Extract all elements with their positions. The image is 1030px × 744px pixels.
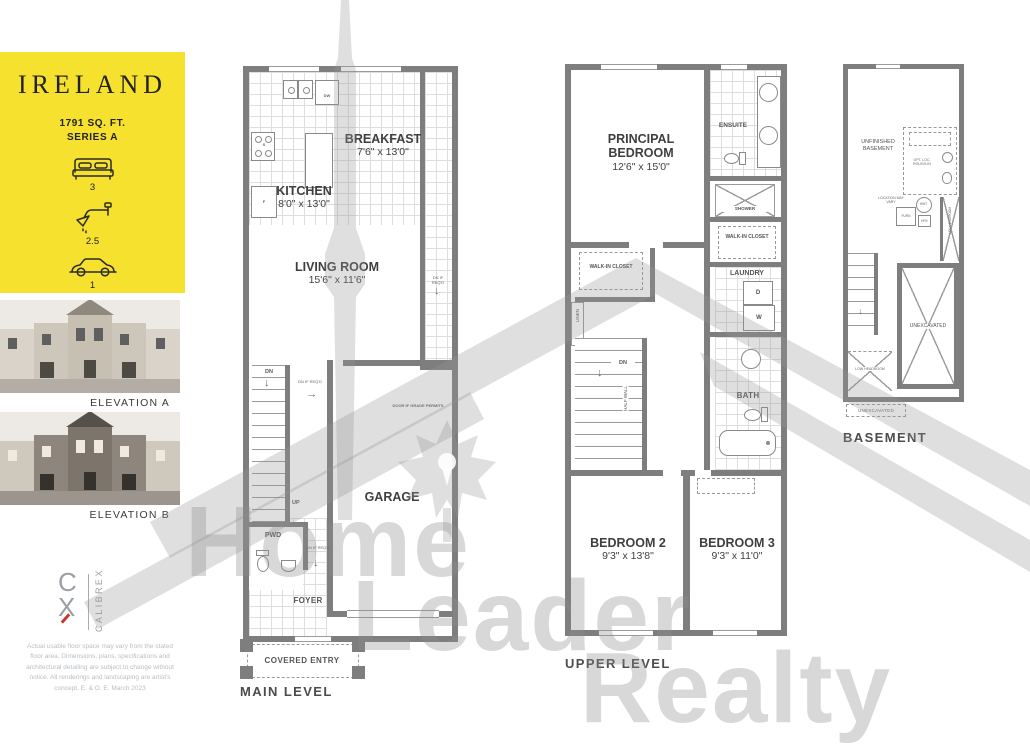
room-dims: 12'6" x 15'0" [581,161,701,173]
laundry-label: LAUNDRY [717,270,777,279]
garage-door-opening [347,610,439,618]
half-wall-label: HALF WALL [623,386,629,411]
townhouse-unit [0,441,34,491]
walkin-closet-label: WALK-IN CLOSET [585,264,637,270]
room-dims: 9'3" x 11'0" [693,550,781,562]
walkin-closet-left: WALK-IN CLOSET [575,248,655,302]
window [156,338,165,349]
bedroom2-label: BEDROOM 2 9'3" x 13'8" [573,536,683,562]
hot-water-tank: HWT [916,197,932,213]
logo-brand-text: CALIBREX [94,572,104,632]
burner [255,136,262,143]
window [76,440,85,453]
calibrex-logo: C X CALIBREX [58,570,138,634]
window [42,446,51,457]
room-dims: 8'0" x 13'0" [250,198,358,210]
low-headroom-strip: LOW HEADROOM [940,197,959,261]
elevation-b-label: ELEVATION B [0,509,170,521]
unexcavated-label: UNEXCAVATED [851,408,901,413]
watermark-word-3: Realty [580,638,892,738]
walkin-closet-label: WALK-IN CLOSET [723,234,771,240]
door-grade-note: DOOR IF GRADE PERMITS [387,404,449,409]
toilet [257,556,269,572]
linen-label: LINEN [575,309,581,322]
stairs-up-label: UP [292,500,312,507]
low-headroom-label: LOW HEADROOM [854,367,886,371]
sink-basin [288,87,295,94]
front-door-opening [295,636,331,642]
unfinished-basement-label: UNFINISHED BASEMENT [848,139,908,153]
hrv-unit: HRV [918,215,931,227]
bath-label: BATH [718,391,778,401]
room-name: BEDROOM 2 [573,536,683,550]
driveway [0,491,180,505]
window [8,338,17,349]
window [94,328,103,341]
garage-door [122,362,136,378]
sink [741,349,761,369]
garage-door [40,474,54,490]
wall [249,522,308,527]
main-level-plan: DN IF REQ'D ↓ DW S F BREAKFAST 7'6" x 13… [243,66,458,642]
logo-divider [88,574,89,630]
yellow-info-panel: IRELAND 1791 SQ. FT. SERIES A 3 2.5 [0,52,185,293]
model-title: IRELAND [0,70,185,100]
covered-entry-label: COVERED ENTRY [254,656,350,666]
car-icon [68,255,118,279]
roof-gable [66,412,114,427]
side-deck: DN IF REQ'D ↓ [420,72,452,370]
principal-bedroom-label: PRINCIPAL BEDROOM 12'6" x 15'0" [581,132,701,173]
unexcavated-area: UNEXCAVATED [897,263,959,389]
low-headroom-area: LOW HEADROOM [848,351,892,391]
bedroom3-closet [697,478,755,494]
breakfast-label: BREAKFAST 7'6" x 13'0" [327,132,439,158]
unexcavated-label: UNEXCAVATED [903,323,953,329]
window [8,450,17,461]
stairs-dn-label: DN [257,369,281,376]
room-name: BREAKFAST [327,132,439,146]
door-opening [663,470,681,476]
burner [265,150,272,157]
townhouse-unit [0,329,34,379]
rough-in-room: OPT. LOC. ROUGH-IN [903,127,957,195]
sqft-text: 1791 SQ. FT. [0,118,185,129]
wall [327,360,333,617]
window [876,64,900,69]
washer: W [743,305,775,331]
burner [265,136,272,143]
hrv-label: HRV [919,220,930,224]
porch-post [352,639,365,652]
main-level-label: MAIN LEVEL [240,684,333,699]
dryer: D [743,281,773,305]
foyer-label: FOYER [269,596,347,606]
kitchen-label: KITCHEN 8'0" x 13'0" [250,184,358,210]
sink [281,560,296,572]
pwd-label: PWD [253,532,293,541]
bath-floor: BATH [715,337,781,470]
elevation-b-photo [0,412,180,505]
tub-drain [766,441,770,445]
window [94,440,103,453]
basement-label: BASEMENT [843,430,927,445]
room-name: BEDROOM 3 [693,536,781,550]
stove: S [251,132,275,161]
window [120,334,129,345]
porch-post [352,666,365,679]
bedroom3-label: BEDROOM 3 9'3" x 11'0" [693,536,781,562]
dishwasher-label: DW [316,94,338,99]
wall [704,70,710,476]
wall [710,176,781,181]
elevation-a-label: ELEVATION A [0,397,170,409]
window [341,66,401,72]
location-note: LOCATION MAY VARY [876,196,906,204]
hwt-label: HWT [917,203,930,207]
rough-in-label: OPT. LOC. ROUGH-IN [906,158,938,166]
washer-label: W [744,315,774,323]
window [120,446,129,457]
upper-level-plan: PRINCIPAL BEDROOM 12'6" x 15'0" ENSUITE … [565,64,787,636]
down-arrow: ↓ [434,286,440,297]
dn-if-reqd-note: DN IF REQ'D [297,380,323,385]
walkin-closet-right [718,226,776,259]
toilet [744,409,761,421]
shower-label: SHOWER [723,206,767,212]
door-opening [695,470,711,476]
rough-in-toilet [942,172,952,184]
driveway [0,379,180,393]
rough-in-sink [942,152,953,163]
garage-label: GARAGE [352,490,432,504]
kitchen-sink [283,80,298,99]
shower-icon [72,201,114,235]
wall [343,360,452,366]
townhouse-unit [146,329,180,379]
covered-entry: COVERED ENTRY [247,644,359,678]
room-dims: 15'6" x 11'6" [267,274,407,286]
window [599,630,653,636]
toilet-tank [761,407,768,422]
bathtub [719,430,776,456]
closet-dash [579,252,643,290]
wall [683,476,690,630]
garage-door [122,474,136,490]
stove-label: S [260,143,268,148]
burner [255,150,262,157]
rough-in-tub [909,132,951,146]
entry-door [84,360,96,378]
room-name: PRINCIPAL BEDROOM [596,132,686,161]
furnace: FURN [896,207,916,226]
furnace-label: FURN [897,215,915,219]
elevation-a-photo [0,300,180,393]
room-name: KITCHEN [250,184,358,198]
window [156,450,165,461]
unexcavated-strip: UNEXCAVATED [846,404,906,417]
down-arrow: ↓ [313,558,319,569]
down-arrow: ↓ [597,368,603,379]
laundry-floor: LAUNDRY D W [715,267,781,332]
dryer-label: D [744,290,772,298]
roof-gable [66,300,114,315]
down-arrow: ↓ [858,307,863,316]
sink [759,83,778,102]
window [42,334,51,345]
bed-icon [70,155,116,181]
garage-door [40,362,54,378]
upper-stairs [575,338,647,470]
window [76,328,85,341]
sink [759,126,778,145]
wall [710,217,781,222]
porch-post [240,666,253,679]
series-text: SERIES A [0,132,185,143]
entry-door [84,472,96,490]
room-dims: 7'6" x 13'0" [327,146,439,158]
beds-count: 3 [0,182,185,193]
toilet-tank [739,152,746,165]
basement-plan: UNFINISHED BASEMENT OPT. LOC. ROUGH-IN L… [843,64,964,402]
window [713,630,757,636]
living-room-label: LIVING ROOM 15'6" x 11'6" [267,260,407,286]
stairs-dn-label: DN [611,360,635,367]
room-name: LIVING ROOM [267,260,407,274]
dishwasher: DW [315,80,339,105]
room-dims: 9'3" x 13'8" [573,550,683,562]
baths-count: 2.5 [0,236,185,247]
townhouse-unit [146,441,180,491]
cars-count: 1 [0,280,185,291]
sink-basin [303,87,310,94]
shower [715,184,775,217]
floorplan-sheet: IRELAND 1791 SQ. FT. SERIES A 3 2.5 [0,0,1030,744]
ensuite-label: ENSUITE [709,122,757,130]
dn-if-reqd-note: DN IF REQ'D [305,546,331,551]
window [269,66,319,72]
basement-stairs [848,253,878,335]
kitchen-sink [298,80,313,99]
down-arrow: ↓ [264,378,270,389]
low-headroom-label: LOW HEADROOM [949,207,953,234]
window [601,64,657,70]
disclaimer-text: Actual usable floor space may vary from … [26,642,174,694]
porch-post [240,639,253,652]
upper-level-label: UPPER LEVEL [565,656,671,671]
right-arrow: ↓ [306,393,317,399]
toilet [724,153,739,164]
